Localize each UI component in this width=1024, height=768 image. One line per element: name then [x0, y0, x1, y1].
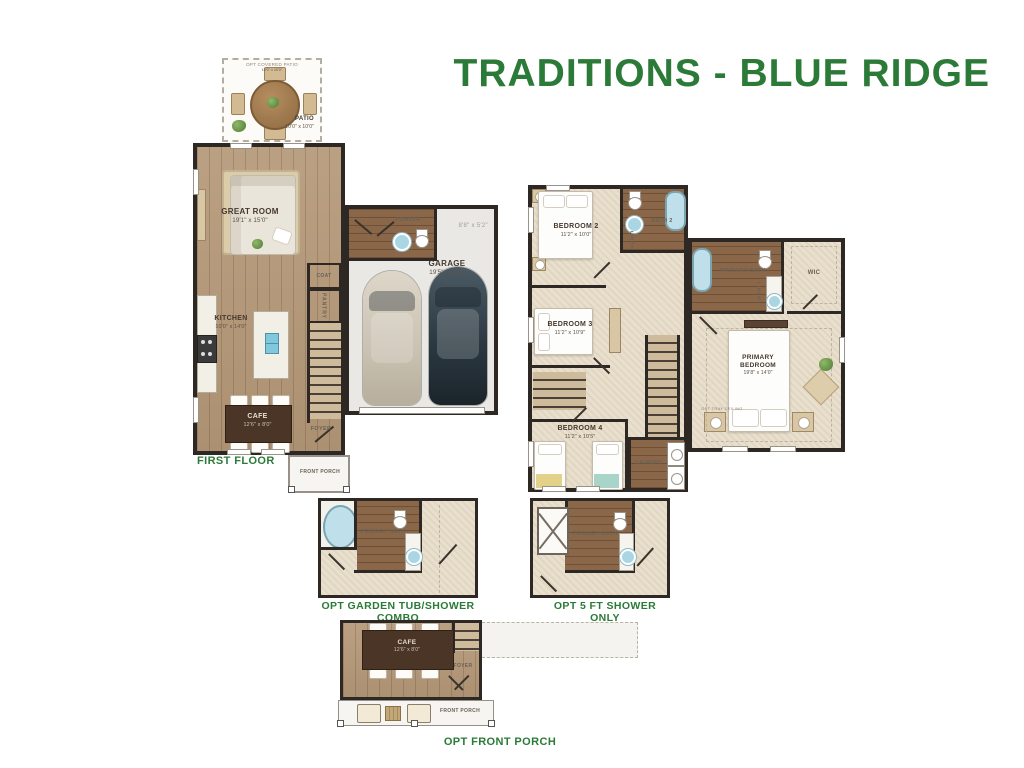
interior-wall	[532, 419, 627, 422]
primary-bath-label: PRIMARY BATH	[571, 531, 619, 538]
patio-chair	[231, 93, 245, 115]
window	[283, 143, 305, 149]
porch-post	[288, 486, 295, 493]
second-floor-right-wing: PRIMARY BATH LINEN WIC	[688, 238, 845, 452]
opt-tray-note: OPT TRAY CEILING	[700, 406, 744, 411]
pillow	[538, 444, 562, 455]
bedroom4-label: BEDROOM 4 11'2" x 10'5"	[548, 425, 612, 441]
opt-front-porch-plan: CAFE 12'6" x 8'0" FOYER	[340, 620, 482, 700]
washer-drum	[671, 449, 683, 461]
room-dims-text: 11'2" x 10'9"	[540, 330, 600, 337]
sink	[620, 549, 636, 565]
front-porch-label: FRONT PORCH	[298, 469, 342, 475]
car-roof	[371, 313, 413, 363]
coat-closet: COAT	[307, 263, 341, 289]
door-swing	[540, 575, 557, 592]
door-swing	[636, 547, 653, 566]
cafe-chair	[369, 669, 387, 679]
porch-chair	[357, 704, 381, 723]
toilet	[393, 510, 407, 529]
room-dims-text: 11'2" x 10'0"	[546, 232, 606, 239]
patio-opt-dims-text: 10'0" x 10'0"	[224, 68, 320, 72]
pillow	[566, 195, 588, 208]
island-sink	[265, 343, 279, 354]
car-left	[363, 271, 421, 405]
interior-wall	[321, 547, 357, 550]
second-floor-left-wing: BEDROOM 2 11'2" x 10'0" BATH 2 LINEN	[528, 185, 688, 492]
patio-area: OPT COVERED PATIO 10'0" x 10'0" PATIO 10…	[222, 58, 322, 142]
garage-corner-dims: 8'8" x 5'2"	[458, 223, 488, 231]
stove-burner	[208, 340, 212, 344]
foyer-label: FOYER	[447, 663, 479, 669]
room-name-text: PRIMARY BATH	[572, 531, 617, 537]
window	[839, 337, 845, 363]
porch-post	[337, 720, 344, 727]
room-dims-text: 19'5" x 20'2"	[405, 269, 489, 277]
car-windshield	[435, 287, 481, 307]
cafe-chair	[421, 669, 439, 679]
room-name-text: PRIMARY BATH	[720, 268, 765, 274]
cafe-label: CAFE 12'6" x 8'0"	[362, 639, 452, 653]
cafe-label: CAFE 12'6" x 8'0"	[225, 413, 290, 429]
pillow	[543, 195, 565, 208]
room-name-text: BATH 2	[651, 218, 672, 224]
room-name-text: KITCHEN	[214, 315, 247, 322]
staircase	[455, 623, 479, 651]
room-name-text: FOYER	[311, 426, 331, 432]
laundry-label: LAUNDRY	[631, 460, 667, 466]
patio-plant	[232, 120, 246, 132]
stove-burner	[201, 340, 205, 344]
car-right	[429, 267, 487, 405]
dryer	[667, 466, 685, 490]
garage-wing: POWDER GARAGE 19'5" x 20'2" 8'8" x 5'2"	[345, 205, 498, 415]
nightstand	[532, 257, 546, 271]
dryer-drum	[671, 473, 683, 485]
pantry-closet: PANTRY	[307, 289, 341, 323]
front-porch: FRONT PORCH	[288, 455, 350, 493]
primary-bath-label: PRIMARY BATH	[718, 268, 768, 275]
room-dims-text: 11'2" x 10'5"	[548, 434, 612, 441]
patio-opt-note: OPT COVERED PATIO 10'0" x 10'0"	[224, 62, 320, 72]
toilet	[613, 512, 627, 531]
pantry-label: PANTRY	[320, 293, 326, 319]
toilet-bowl	[613, 518, 627, 531]
stove-burner	[201, 352, 205, 356]
primary-sink	[767, 294, 782, 309]
room-name-text: PRIMARY BATH	[360, 529, 405, 535]
porch-post	[343, 486, 350, 493]
garage-label: GARAGE 19'5" x 20'2"	[405, 259, 489, 277]
porch-table	[385, 706, 401, 721]
interior-wall	[532, 365, 610, 368]
patio-chair	[303, 93, 317, 115]
room-dims-text: 19'8" x 14'0"	[728, 370, 788, 376]
room-name-text: CAFE	[247, 413, 267, 420]
opt-porch-area: FRONT PORCH	[338, 700, 494, 726]
window	[542, 486, 566, 492]
room-name-text: GREAT ROOM	[221, 207, 279, 216]
front-porch-label: FRONT PORCH	[435, 708, 485, 714]
bedroom-edge-dashed	[439, 505, 440, 593]
room-dims-text: 19'1" x 15'0"	[215, 217, 285, 225]
porch-post	[411, 720, 418, 727]
mud-hall: POWDER	[349, 209, 437, 261]
page-title: TRADITIONS - BLUE RIDGE	[454, 52, 991, 96]
laundry-room: LAUNDRY	[628, 437, 684, 488]
bath2-label: BATH 2	[641, 218, 683, 225]
porch-post	[488, 720, 495, 727]
powder-label: POWDER	[385, 217, 431, 223]
closet-door-line	[355, 219, 373, 234]
walk-in-closet: WIC	[787, 242, 841, 314]
twin-bed	[592, 441, 623, 490]
patio-label: PATIO 10'0" x 10'0"	[285, 116, 314, 130]
patio-opt-note-text: OPT COVERED PATIO	[246, 62, 298, 67]
window	[528, 441, 534, 467]
room-name-text: LINEN	[630, 231, 635, 250]
bedroom3-dresser	[609, 308, 621, 353]
kitchen-label: KITCHEN 10'0" x 14'0"	[207, 315, 255, 331]
window	[576, 486, 600, 492]
wic-label: WIC	[799, 270, 829, 278]
primary-bath-room: PRIMARY BATH LINEN	[692, 242, 784, 314]
window	[193, 397, 199, 423]
room-name-text: BEDROOM 3	[547, 321, 592, 328]
opt-shower-only-plan: PRIMARY BATH	[530, 498, 670, 598]
room-name-text: FRONT PORCH	[440, 708, 480, 714]
adjacent-garage-outline	[482, 622, 638, 658]
window	[227, 449, 251, 455]
powder-toilet	[415, 229, 429, 248]
primary-toilet	[758, 250, 772, 269]
washer	[667, 442, 685, 466]
powder-sink	[393, 233, 411, 251]
coat-label: COAT	[309, 273, 339, 279]
window	[528, 317, 534, 343]
stove	[197, 335, 217, 363]
window	[546, 185, 570, 191]
note-text: OPT TRAY CEILING	[701, 406, 742, 411]
lamp	[535, 260, 545, 270]
room-name-text: CAFE	[398, 639, 417, 646]
bedroom2-label: BEDROOM 2 11'2" x 10'0"	[546, 223, 606, 239]
interior-wall	[354, 501, 357, 548]
room-name-text: FOYER	[454, 663, 473, 669]
toilet-bowl	[415, 235, 429, 248]
window	[230, 143, 252, 149]
cafe-chair	[395, 669, 413, 679]
first-floor-main: GREAT ROOM 19'1" x 15'0" KITCHEN 10'0" x…	[193, 143, 345, 455]
room-name-text: GARAGE	[429, 259, 466, 268]
toilet-bowl	[628, 197, 642, 210]
room-dims-text: 10'0" x 10'0"	[285, 124, 314, 130]
primary-bedroom-label: PRIMARY BEDROOM 19'8" x 14'0"	[728, 354, 788, 377]
opt-shower-only-caption: OPT 5 FT SHOWER ONLY	[538, 600, 672, 624]
primary-linen-label: LINEN	[756, 282, 762, 301]
floor-plan-canvas: TRADITIONS - BLUE RIDGE OPT COVERED PATI…	[0, 0, 1024, 768]
dims-text: 8'8" x 5'2"	[458, 223, 488, 229]
foyer-label: FOYER	[301, 426, 341, 433]
garage-door-opening	[359, 407, 485, 414]
primary-tub	[692, 248, 712, 292]
bath2-room: BATH 2 LINEN	[620, 189, 684, 253]
room-name-text: BEDROOM 4	[557, 425, 602, 432]
twin-bed	[534, 441, 566, 490]
window	[261, 449, 285, 455]
stair-flight-upper	[533, 372, 586, 410]
opt-front-porch-caption: OPT FRONT PORCH	[430, 736, 570, 748]
window	[722, 446, 748, 452]
bedroom-console	[744, 320, 788, 328]
car-roof	[437, 309, 479, 359]
bedroom2-door-swing	[593, 262, 610, 279]
window	[770, 446, 796, 452]
bedroom3-label: BEDROOM 3 11'2" x 10'9"	[540, 321, 600, 337]
room-name-text: BEDROOM 2	[553, 223, 598, 230]
staircase-first-floor	[310, 323, 341, 419]
first-floor-caption: FIRST FLOOR	[197, 455, 275, 467]
window	[193, 169, 199, 195]
opt-garden-tub-plan: PRIMARY BATH	[318, 498, 478, 598]
room-name-text: WIC	[808, 270, 821, 276]
room-dims-text: 10'0" x 14'0"	[207, 324, 255, 331]
shower	[537, 507, 569, 555]
room-name-text: COAT	[317, 273, 332, 279]
sink	[406, 549, 422, 565]
room-name-text: FRONT PORCH	[300, 469, 340, 475]
pillow	[596, 444, 619, 455]
interior-wall	[532, 285, 606, 288]
room-name-text: LINEN	[757, 282, 762, 301]
bath2-tub	[665, 191, 686, 231]
room-name-text: LAUNDRY	[636, 460, 662, 466]
room-name-text: PANTRY	[320, 293, 326, 319]
room-dims-text: 12'6" x 8'0"	[225, 422, 290, 429]
garden-tub	[323, 505, 358, 549]
door-swing	[328, 553, 345, 570]
stove-burner	[208, 352, 212, 356]
bath2-linen-label: LINEN	[629, 231, 635, 250]
room-name-text: PATIO	[295, 116, 314, 122]
tv-console	[197, 189, 206, 241]
staircase-second-floor	[645, 335, 680, 445]
car-windshield	[369, 291, 415, 311]
great-room-label: GREAT ROOM 19'1" x 15'0"	[215, 207, 285, 225]
door-swing	[438, 544, 457, 564]
room-name-text: POWDER	[396, 217, 420, 223]
window	[528, 207, 534, 233]
toilet-bowl	[393, 516, 407, 529]
primary-bath-label: PRIMARY BATH	[359, 529, 407, 536]
room-name-text: PRIMARY BEDROOM	[740, 354, 776, 369]
bath2-toilet	[628, 191, 642, 210]
room-dims-text: 12'6" x 8'0"	[362, 647, 452, 653]
closet-door-line	[377, 221, 395, 236]
